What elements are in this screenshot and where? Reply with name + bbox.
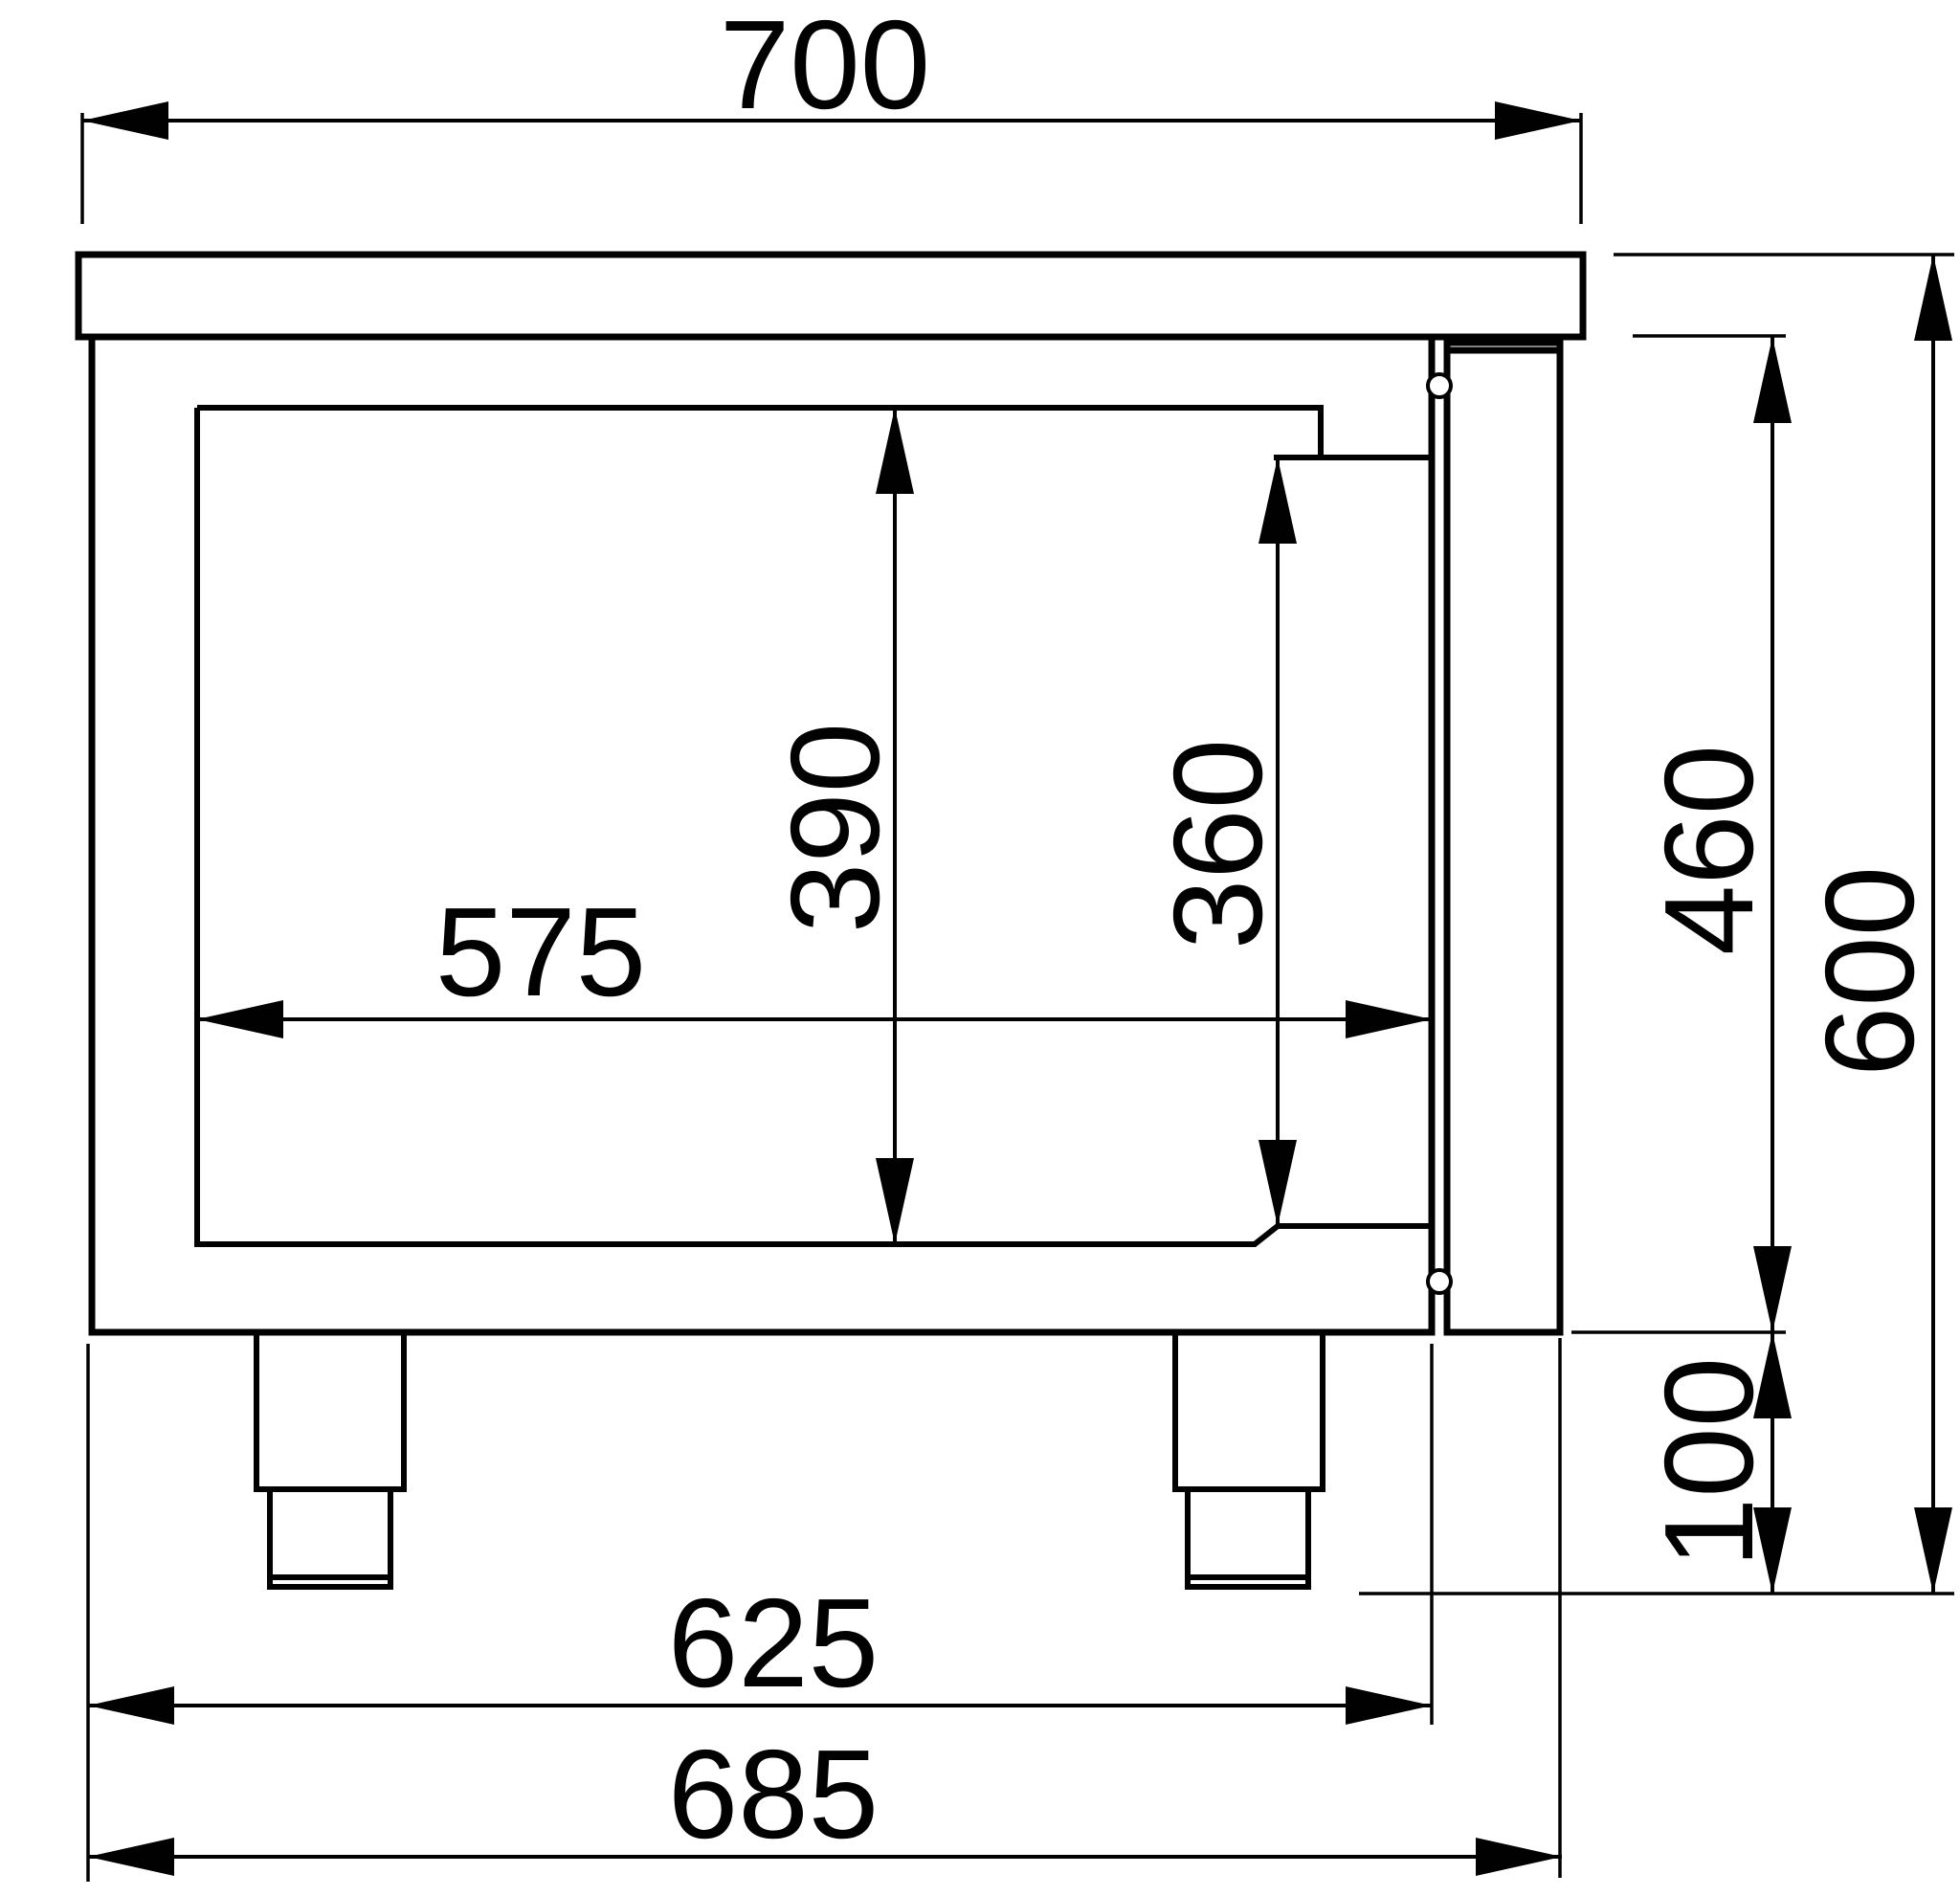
dim-body-with-door-depth: 685 bbox=[88, 1724, 1562, 1876]
dim-overall-height: 600 bbox=[1799, 255, 1952, 1594]
right-leg-upper bbox=[1175, 1332, 1323, 1489]
arrow-left-icon bbox=[82, 101, 168, 140]
dim-leg-height-label: 100 bbox=[1638, 1357, 1779, 1568]
dim-body-with-door-depth-label: 685 bbox=[668, 1724, 879, 1864]
dim-inner-height-step-label: 360 bbox=[1147, 739, 1288, 949]
worktop-outline bbox=[78, 255, 1583, 337]
arrow-up-icon bbox=[876, 408, 914, 494]
arrow-down-icon bbox=[1753, 1246, 1792, 1332]
dim-top-depth-label: 700 bbox=[720, 0, 930, 135]
hinge-pin-top-icon bbox=[1428, 374, 1451, 397]
dim-top-depth: 700 bbox=[82, 0, 1581, 140]
arrow-left-icon bbox=[88, 1686, 174, 1725]
left-leg-upper bbox=[256, 1332, 404, 1489]
extension-lines bbox=[82, 113, 1954, 1882]
dim-body-depth-label: 625 bbox=[668, 1573, 879, 1713]
dim-inner-height-label: 390 bbox=[765, 723, 905, 933]
arrow-left-icon bbox=[197, 1000, 283, 1038]
dim-overall-height-label: 600 bbox=[1799, 866, 1940, 1077]
arrow-right-icon bbox=[1476, 1838, 1562, 1876]
compartment-top-step bbox=[197, 408, 1321, 457]
dim-body-depth: 625 bbox=[88, 1573, 1432, 1725]
technical-drawing-canvas: 700 575 390 360 460 bbox=[0, 0, 1960, 1896]
right-leg-foot bbox=[1188, 1489, 1308, 1577]
arrow-down-icon bbox=[1914, 1507, 1952, 1594]
arrow-up-icon bbox=[1258, 457, 1297, 544]
left-leg-foot bbox=[270, 1489, 390, 1577]
dim-door-height-label: 460 bbox=[1638, 745, 1779, 955]
arrow-right-icon bbox=[1346, 1686, 1432, 1725]
dim-door-height: 460 bbox=[1638, 337, 1792, 1332]
technical-drawing-page: 700 575 390 360 460 bbox=[0, 0, 1960, 1896]
dim-inner-height-step: 360 bbox=[1147, 457, 1297, 1226]
hinge-pin-bottom-icon bbox=[1428, 1270, 1451, 1293]
arrow-up-icon bbox=[1914, 255, 1952, 341]
right-leg-base-plate bbox=[1188, 1577, 1308, 1587]
arrow-down-icon bbox=[876, 1158, 914, 1244]
left-leg-base-plate bbox=[270, 1577, 390, 1587]
arrow-up-icon bbox=[1753, 337, 1792, 423]
arrow-down-icon bbox=[1258, 1140, 1297, 1226]
dim-inner-height: 390 bbox=[765, 408, 914, 1244]
arrow-right-icon bbox=[1346, 1000, 1432, 1038]
door-panel bbox=[1447, 343, 1560, 1332]
arrow-left-icon bbox=[88, 1838, 174, 1876]
arrow-right-icon bbox=[1495, 101, 1581, 140]
dim-inner-depth-label: 575 bbox=[435, 881, 646, 1022]
dim-leg-height: 100 bbox=[1638, 1332, 1792, 1594]
